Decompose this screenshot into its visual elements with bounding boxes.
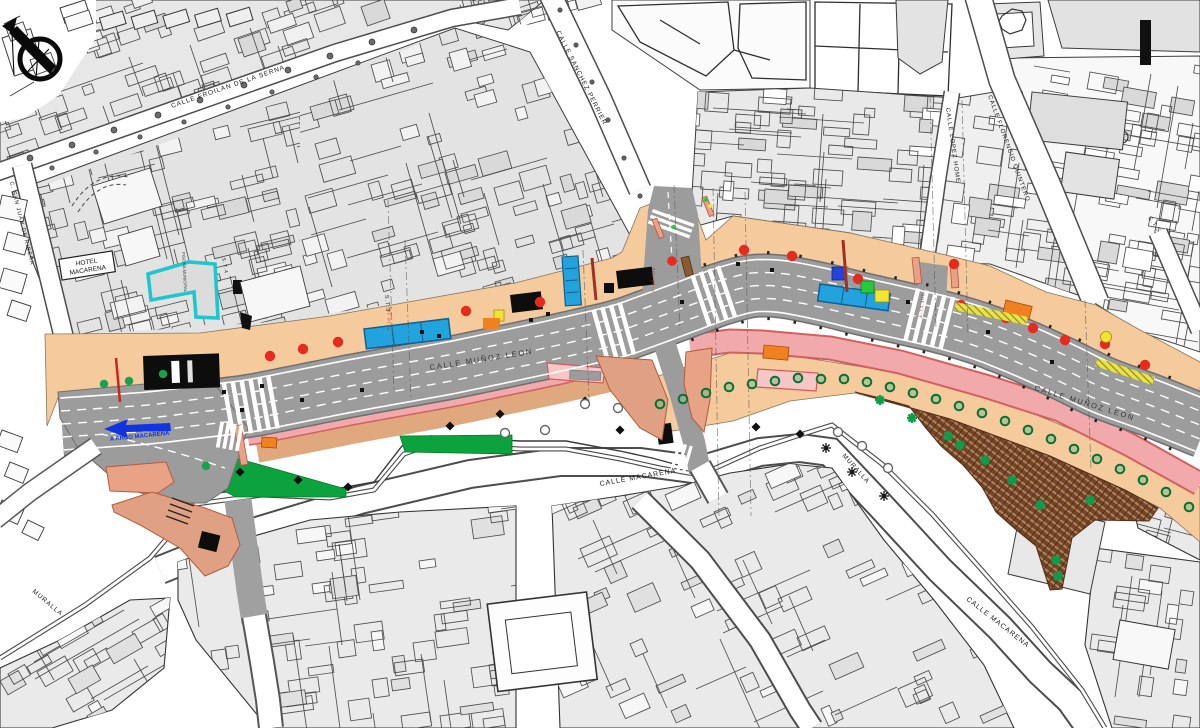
svg-text:A-10.705: A-10.705 [650,267,656,292]
